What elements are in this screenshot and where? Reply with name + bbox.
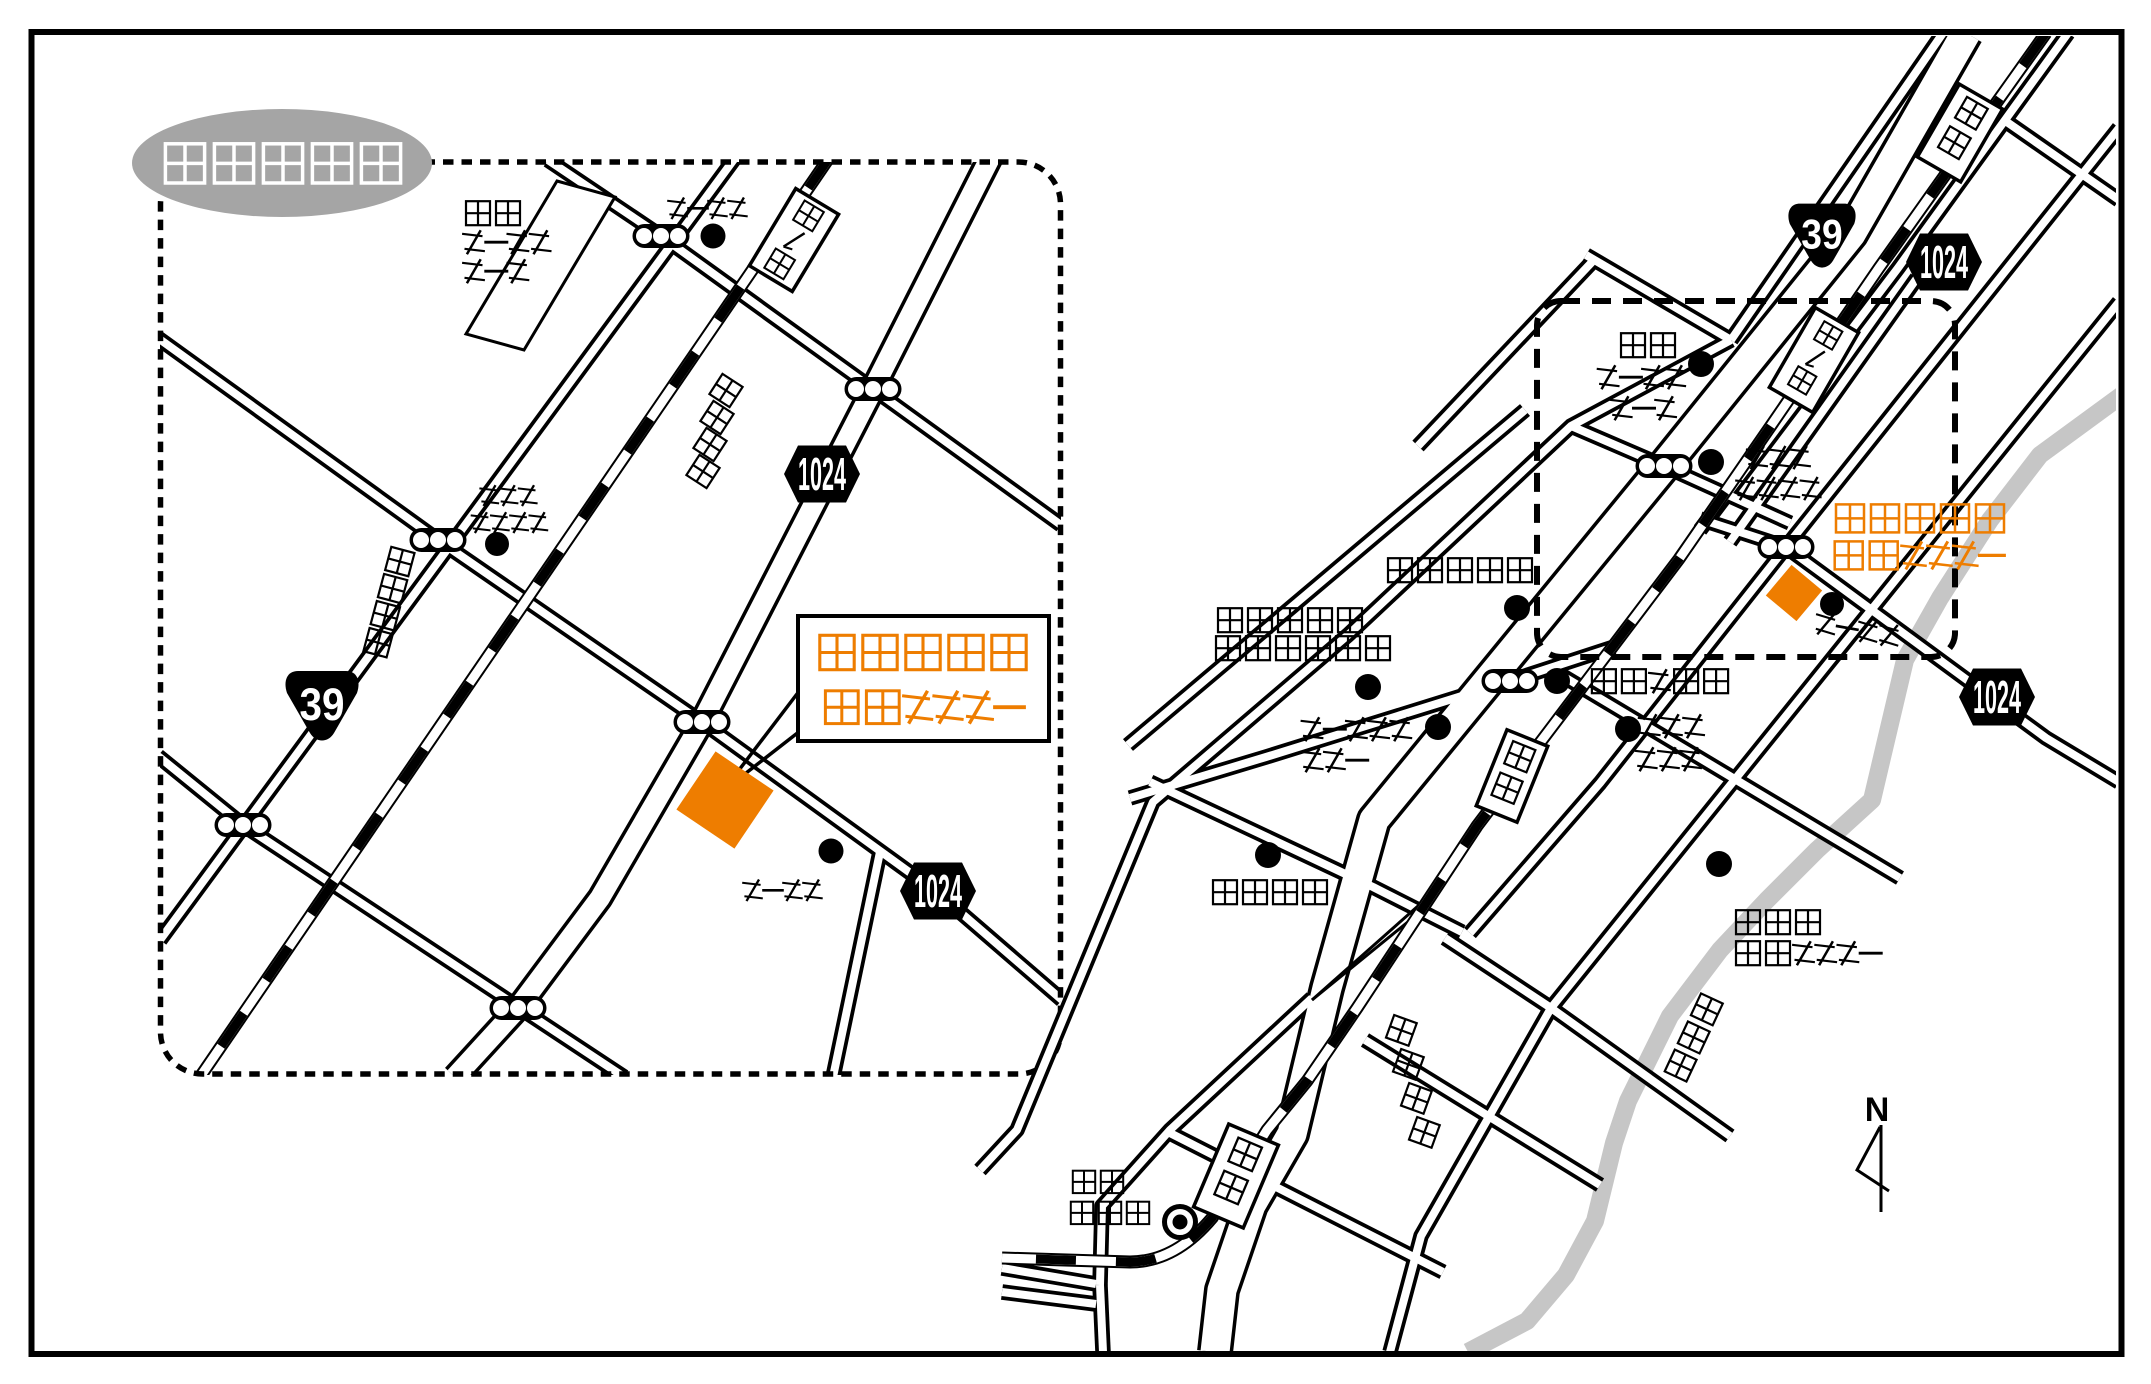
svg-text:39: 39 bbox=[1801, 212, 1842, 258]
svg-text:N: N bbox=[1865, 1091, 1890, 1129]
